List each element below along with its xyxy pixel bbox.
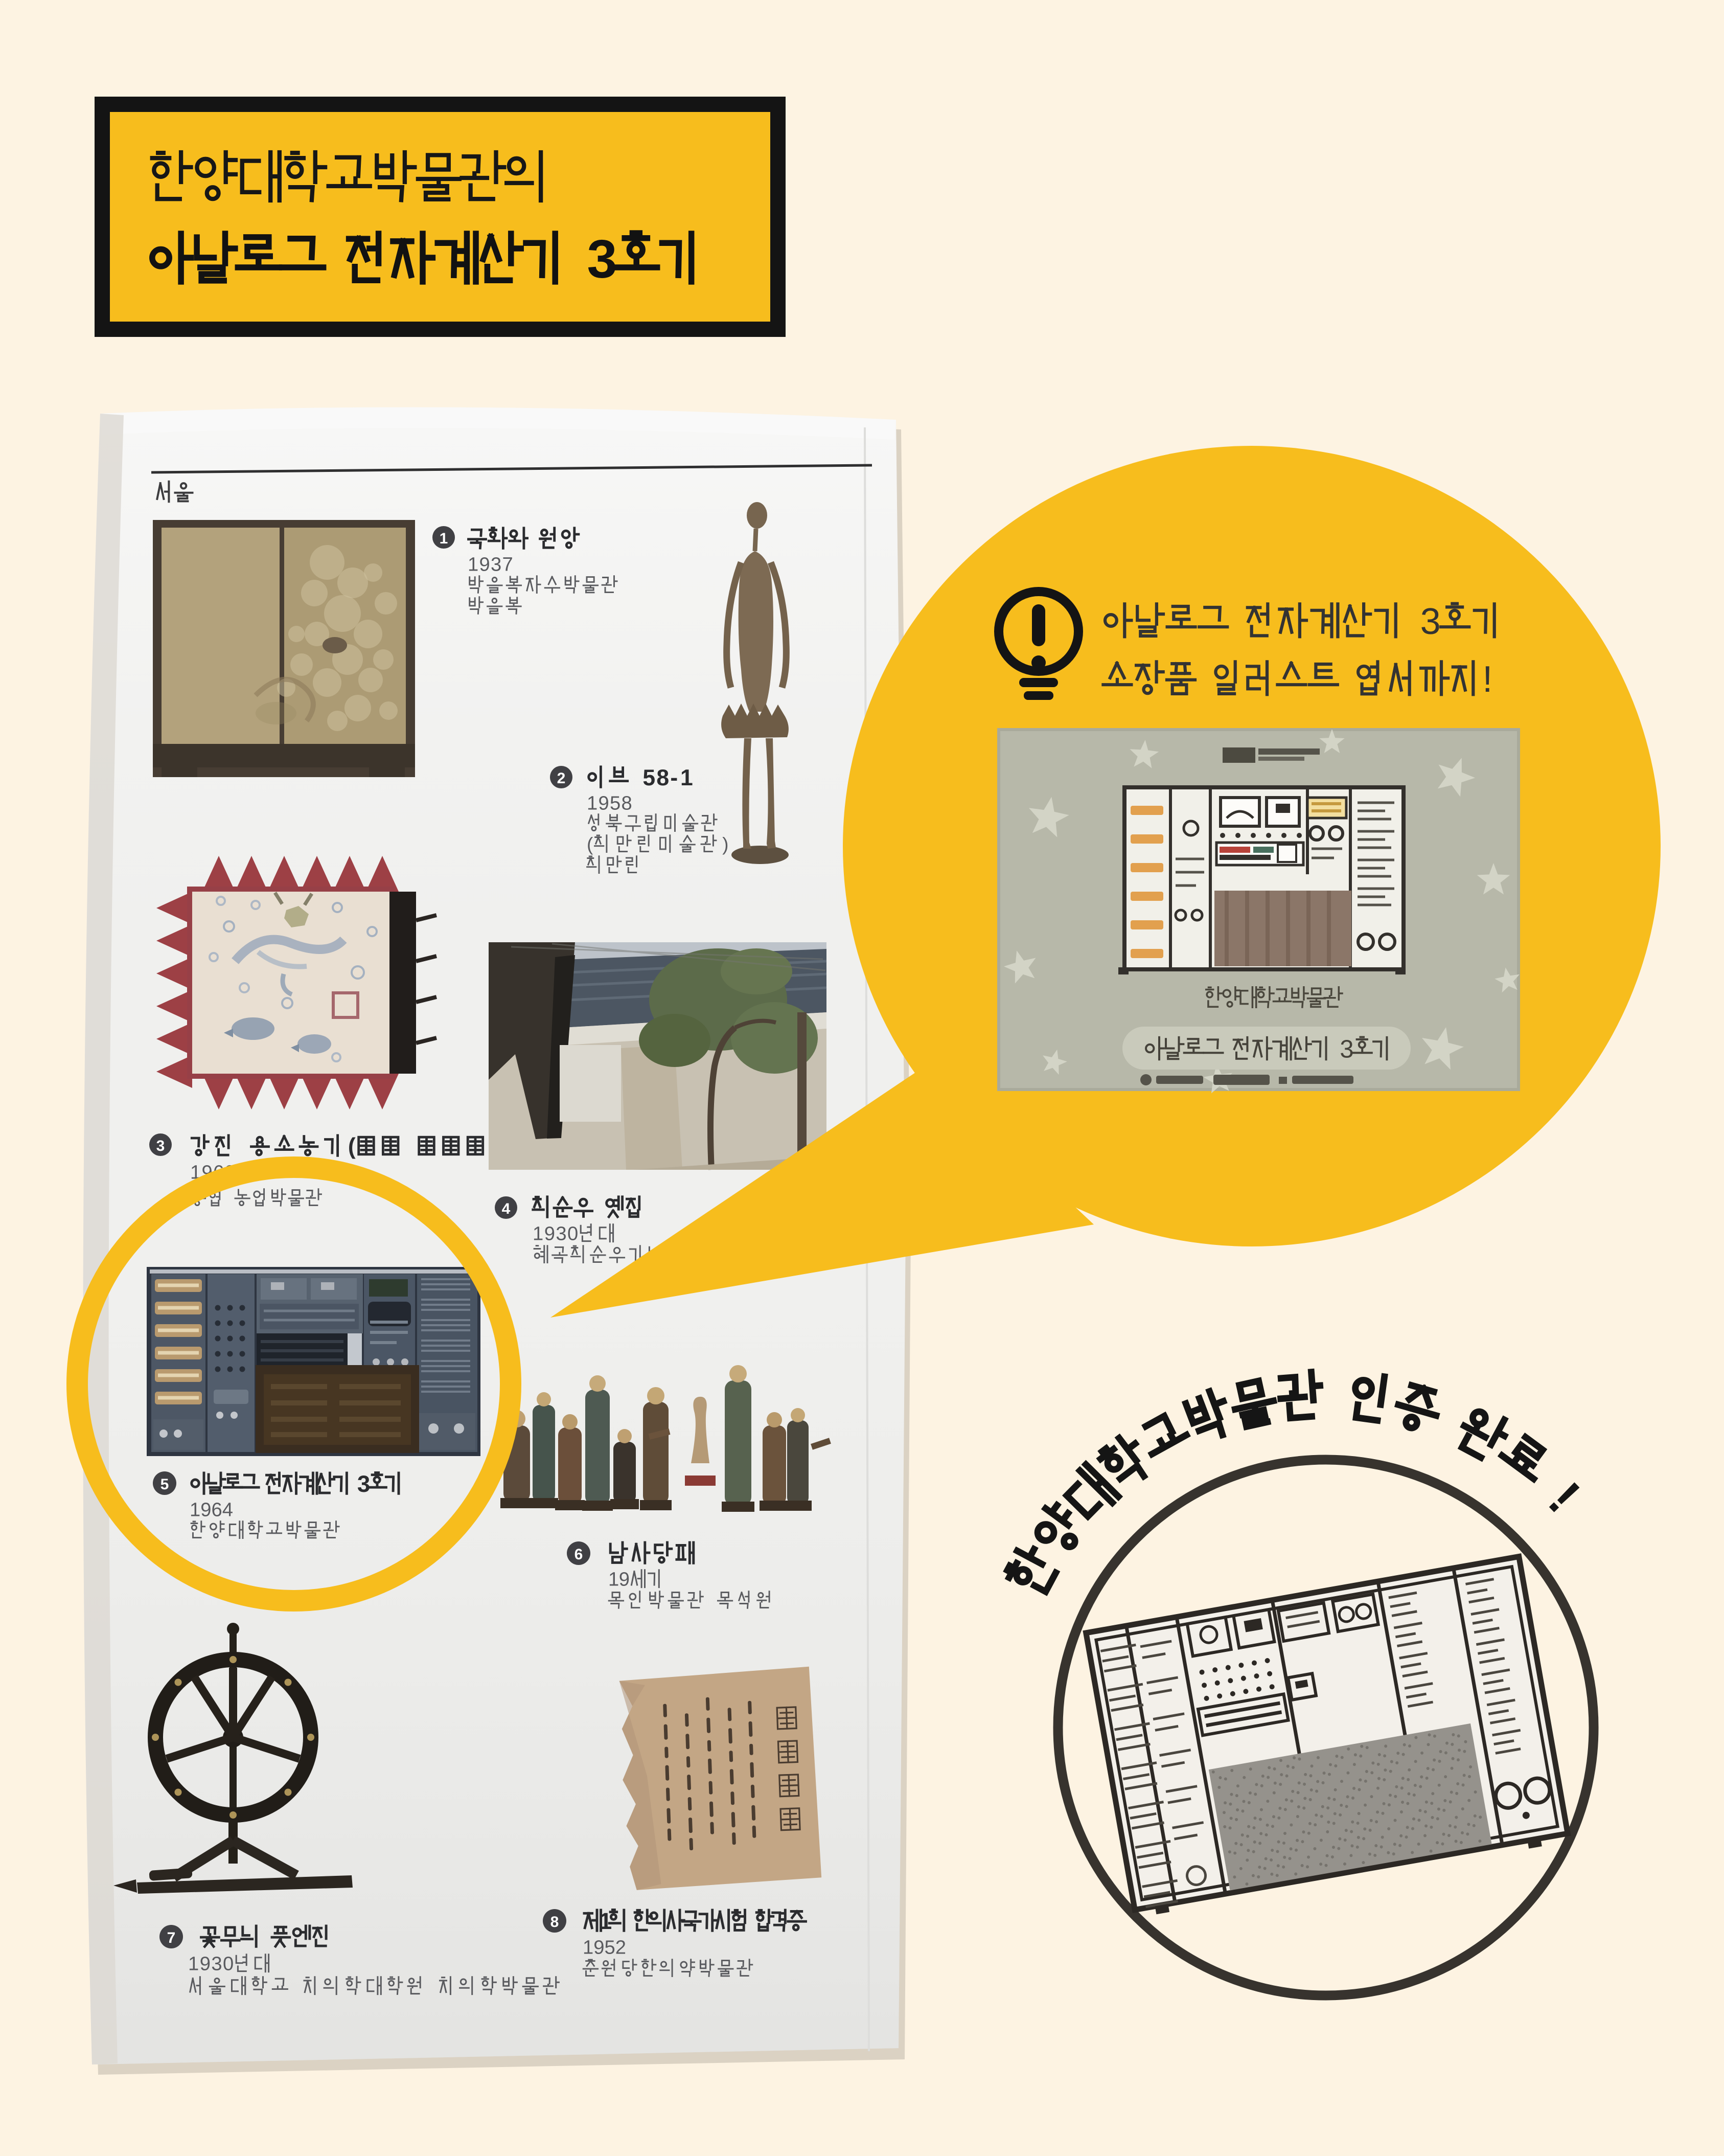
svg-text:0: 0 bbox=[223, 1953, 234, 1975]
svg-text:9: 9 bbox=[593, 1937, 604, 1959]
svg-text:9: 9 bbox=[619, 1569, 630, 1591]
svg-text:9: 9 bbox=[200, 1499, 211, 1521]
svg-text:6: 6 bbox=[574, 1546, 583, 1563]
svg-text:2: 2 bbox=[615, 1937, 626, 1959]
svg-text:4: 4 bbox=[502, 1200, 511, 1217]
svg-text:2: 2 bbox=[557, 770, 566, 787]
svg-text:9: 9 bbox=[544, 1223, 555, 1245]
svg-text:1: 1 bbox=[188, 1953, 199, 1975]
svg-text:(: ( bbox=[348, 1134, 356, 1159]
svg-text:1: 1 bbox=[583, 1937, 593, 1959]
svg-text:3: 3 bbox=[556, 1223, 566, 1245]
svg-text:1: 1 bbox=[680, 765, 693, 790]
svg-text:3: 3 bbox=[491, 554, 501, 576]
svg-text:7: 7 bbox=[502, 554, 513, 576]
svg-text:8: 8 bbox=[550, 1914, 559, 1931]
svg-text:4: 4 bbox=[222, 1499, 233, 1521]
svg-text:(: ( bbox=[587, 833, 593, 855]
svg-text:8: 8 bbox=[656, 765, 669, 790]
svg-text:6: 6 bbox=[212, 1499, 222, 1521]
svg-text:1: 1 bbox=[440, 530, 448, 547]
svg-text:3: 3 bbox=[156, 1138, 165, 1154]
svg-text:3: 3 bbox=[357, 1471, 370, 1497]
svg-text:8: 8 bbox=[622, 792, 632, 814]
svg-text:): ) bbox=[722, 833, 728, 855]
svg-text:3: 3 bbox=[211, 1953, 222, 1975]
svg-text:1: 1 bbox=[468, 554, 478, 576]
svg-text:9: 9 bbox=[200, 1953, 211, 1975]
svg-text:3: 3 bbox=[1420, 601, 1441, 642]
svg-text:9: 9 bbox=[479, 554, 490, 576]
svg-text:3: 3 bbox=[1340, 1036, 1353, 1063]
svg-text:7: 7 bbox=[167, 1930, 176, 1946]
svg-text:1: 1 bbox=[608, 1569, 619, 1591]
svg-text:1: 1 bbox=[190, 1499, 200, 1521]
svg-text:0: 0 bbox=[567, 1223, 578, 1245]
svg-text:3: 3 bbox=[587, 229, 617, 289]
svg-text:!: ! bbox=[1482, 659, 1492, 700]
svg-text:5: 5 bbox=[642, 765, 655, 790]
svg-text:-: - bbox=[670, 765, 678, 790]
svg-text:5: 5 bbox=[605, 1937, 615, 1959]
svg-text:9: 9 bbox=[599, 792, 609, 814]
svg-text:1: 1 bbox=[587, 792, 597, 814]
svg-text:5: 5 bbox=[160, 1476, 169, 1493]
svg-text:1: 1 bbox=[533, 1223, 543, 1245]
svg-text:5: 5 bbox=[610, 792, 620, 814]
